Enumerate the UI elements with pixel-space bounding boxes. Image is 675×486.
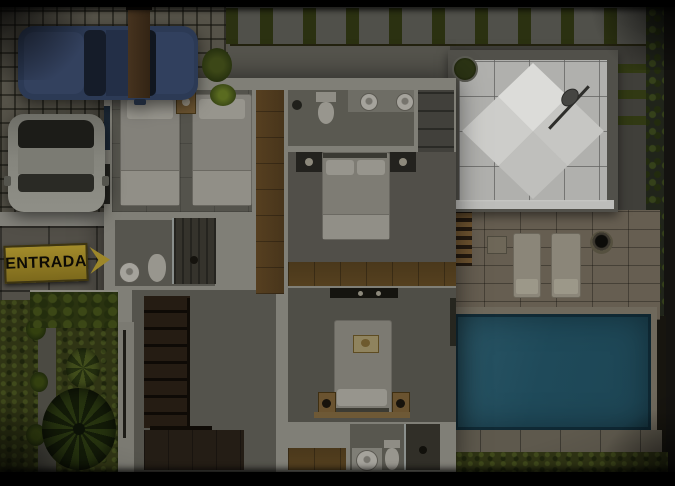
master-nightstand-left xyxy=(296,152,322,172)
terrace-glare-band xyxy=(452,200,614,209)
palm-tree xyxy=(42,388,116,470)
decor-item xyxy=(376,291,381,296)
shrub-2 xyxy=(30,372,48,392)
master-bed xyxy=(322,152,390,240)
master-nightstand-right xyxy=(390,152,416,172)
fence-pillars xyxy=(230,8,650,46)
car-hood xyxy=(156,32,194,94)
sun-lounger-right xyxy=(551,233,581,298)
car-mirror-bottom xyxy=(134,99,146,105)
toilet-bottom-tank xyxy=(384,440,400,448)
car-trunk xyxy=(24,32,84,94)
pillow xyxy=(326,160,354,175)
pergola-post xyxy=(128,6,150,98)
twin-bed-left xyxy=(120,94,180,206)
entrance-sign-board: ENTRADA xyxy=(3,243,88,284)
fire-bowl-planter xyxy=(590,231,613,254)
downspout-pipe xyxy=(123,330,126,438)
sink-bottom xyxy=(356,450,378,471)
toilet-bottom xyxy=(385,448,399,470)
letterbox-top xyxy=(0,0,675,7)
speaker-cone xyxy=(396,399,405,408)
toilet-top xyxy=(318,102,334,124)
bed-bottom xyxy=(334,320,392,416)
car-mirror-right xyxy=(102,176,109,186)
shower-head-icon xyxy=(419,446,427,454)
toilet-top-tank xyxy=(316,92,336,102)
entrance-sign-label: ENTRADA xyxy=(5,253,87,274)
sun-lounger-left xyxy=(513,233,541,298)
car-roof xyxy=(18,148,94,174)
corridor-wood-horizontal xyxy=(288,262,456,286)
pendant-light xyxy=(292,100,302,110)
tv-console-shelf xyxy=(330,288,398,298)
shower-head-icon xyxy=(190,256,198,264)
shower-bottom xyxy=(404,424,440,470)
swimming-pool xyxy=(455,314,651,430)
bush-lower xyxy=(210,84,236,106)
speaker-cone xyxy=(322,399,331,408)
arrow-right-icon xyxy=(89,246,110,274)
stair-handrail xyxy=(187,298,190,428)
vanity-sink-right xyxy=(396,93,414,111)
lamp xyxy=(305,158,313,166)
pool-deck-bottom xyxy=(440,430,662,454)
agave-plant xyxy=(66,348,100,388)
sink-left xyxy=(119,262,140,283)
letterbox-bottom xyxy=(0,472,675,486)
patio-side-table xyxy=(487,236,507,254)
toilet-left xyxy=(148,254,166,282)
decor-item xyxy=(358,291,363,296)
shower-left xyxy=(172,218,216,284)
car-mirror-left xyxy=(4,176,11,186)
side-yard-concrete xyxy=(228,40,462,82)
pillow xyxy=(337,389,387,406)
blanket-fold xyxy=(193,170,251,205)
car-rear-window xyxy=(18,120,94,148)
headboard xyxy=(323,153,387,158)
vanity-sink-left xyxy=(360,93,378,111)
pillow xyxy=(357,160,385,175)
decor-blanket xyxy=(353,335,379,353)
staircase xyxy=(144,296,190,428)
entrance-sign: ENTRADA xyxy=(3,240,110,284)
garden-wall-strip xyxy=(118,322,134,476)
car-blue xyxy=(18,26,198,100)
hedge-corner xyxy=(226,8,238,44)
car-white xyxy=(8,114,105,212)
headboard-shelf xyxy=(314,412,410,418)
lamp xyxy=(399,158,407,166)
glass-door-pool-side xyxy=(450,298,456,346)
blanket-fold xyxy=(121,170,179,205)
palm-core xyxy=(73,423,85,435)
floor-plan-scene: ENTRADA xyxy=(0,0,675,486)
emblem xyxy=(361,339,370,347)
corridor-wood-vertical xyxy=(256,90,284,294)
blanket-fold xyxy=(323,214,389,239)
car-windshield xyxy=(18,174,94,192)
bush-top xyxy=(202,48,232,82)
twin-bed-right xyxy=(192,94,252,206)
stair-landing xyxy=(144,430,244,470)
planter-hedge xyxy=(30,290,118,328)
closet-wood-floor xyxy=(288,448,346,470)
driveway-edge-wall xyxy=(0,212,106,226)
car-rear-window xyxy=(84,30,106,96)
